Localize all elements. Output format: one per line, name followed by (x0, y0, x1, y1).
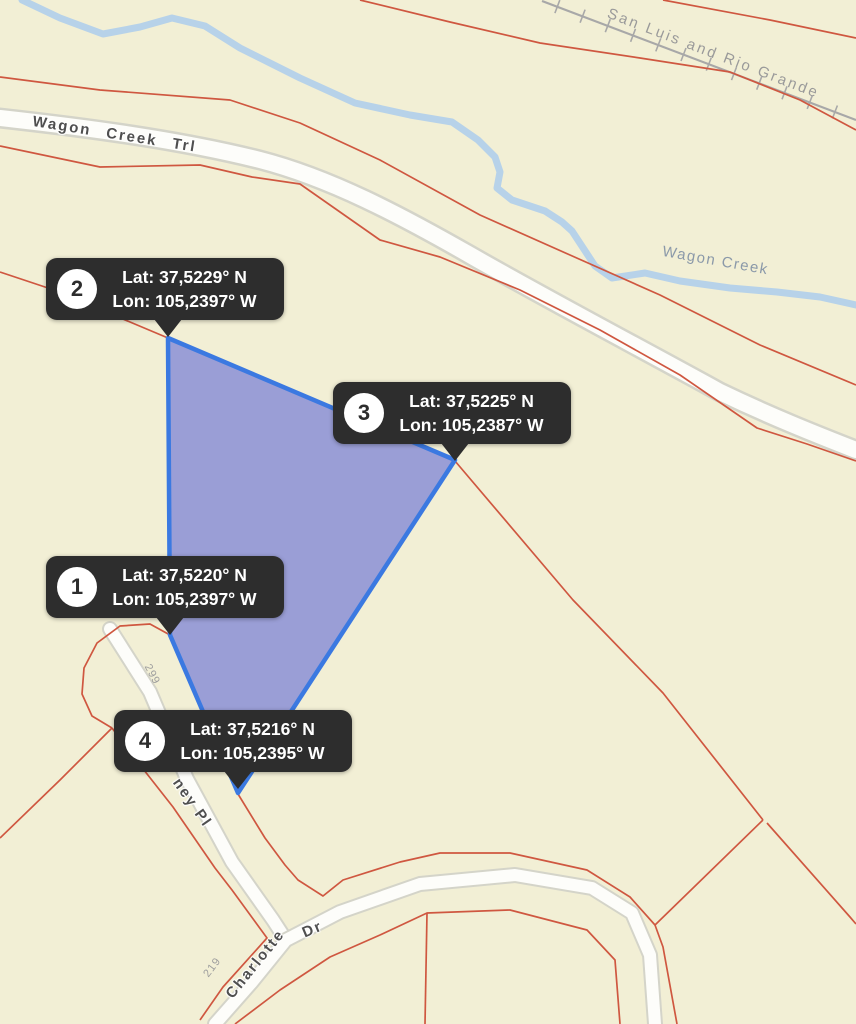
marker-tooltip-4[interactable]: 4 Lat: 37,5216° N Lon: 105,2395° W (114, 710, 352, 772)
marker-lon: Lon: 105,2395° W (165, 741, 340, 765)
tooltip-pointer (154, 319, 182, 337)
marker-tooltip-1[interactable]: 1 Lat: 37,5220° N Lon: 105,2397° W (46, 556, 284, 618)
marker-lat: Lat: 37,5229° N (97, 265, 272, 289)
marker-number-badge: 4 (125, 721, 165, 761)
tooltip-pointer (441, 443, 469, 461)
marker-coordinates: Lat: 37,5225° N Lon: 105,2387° W (384, 389, 559, 437)
tooltip-pointer (156, 617, 184, 635)
marker-lat: Lat: 37,5216° N (165, 717, 340, 741)
marker-number-badge: 3 (344, 393, 384, 433)
parcel-boundary-lines (0, 0, 856, 1024)
marker-number-badge: 2 (57, 269, 97, 309)
map-base-layer (0, 0, 856, 1024)
marker-lat: Lat: 37,5225° N (384, 389, 559, 413)
road-charlotte-dr (215, 875, 655, 1024)
marker-coordinates: Lat: 37,5216° N Lon: 105,2395° W (165, 717, 340, 765)
tooltip-pointer (224, 771, 252, 789)
railroad-line (542, 1, 856, 120)
marker-tooltip-3[interactable]: 3 Lat: 37,5225° N Lon: 105,2387° W (333, 382, 571, 444)
marker-number-badge: 1 (57, 567, 97, 607)
marker-lon: Lon: 105,2397° W (97, 289, 272, 313)
map-canvas[interactable]: Wagon Creek Trl San Luis and Rio Grande … (0, 0, 856, 1024)
marker-lon: Lon: 105,2397° W (97, 587, 272, 611)
marker-lat: Lat: 37,5220° N (97, 563, 272, 587)
marker-lon: Lon: 105,2387° W (384, 413, 559, 437)
marker-coordinates: Lat: 37,5229° N Lon: 105,2397° W (97, 265, 272, 313)
marker-coordinates: Lat: 37,5220° N Lon: 105,2397° W (97, 563, 272, 611)
marker-tooltip-2[interactable]: 2 Lat: 37,5229° N Lon: 105,2397° W (46, 258, 284, 320)
